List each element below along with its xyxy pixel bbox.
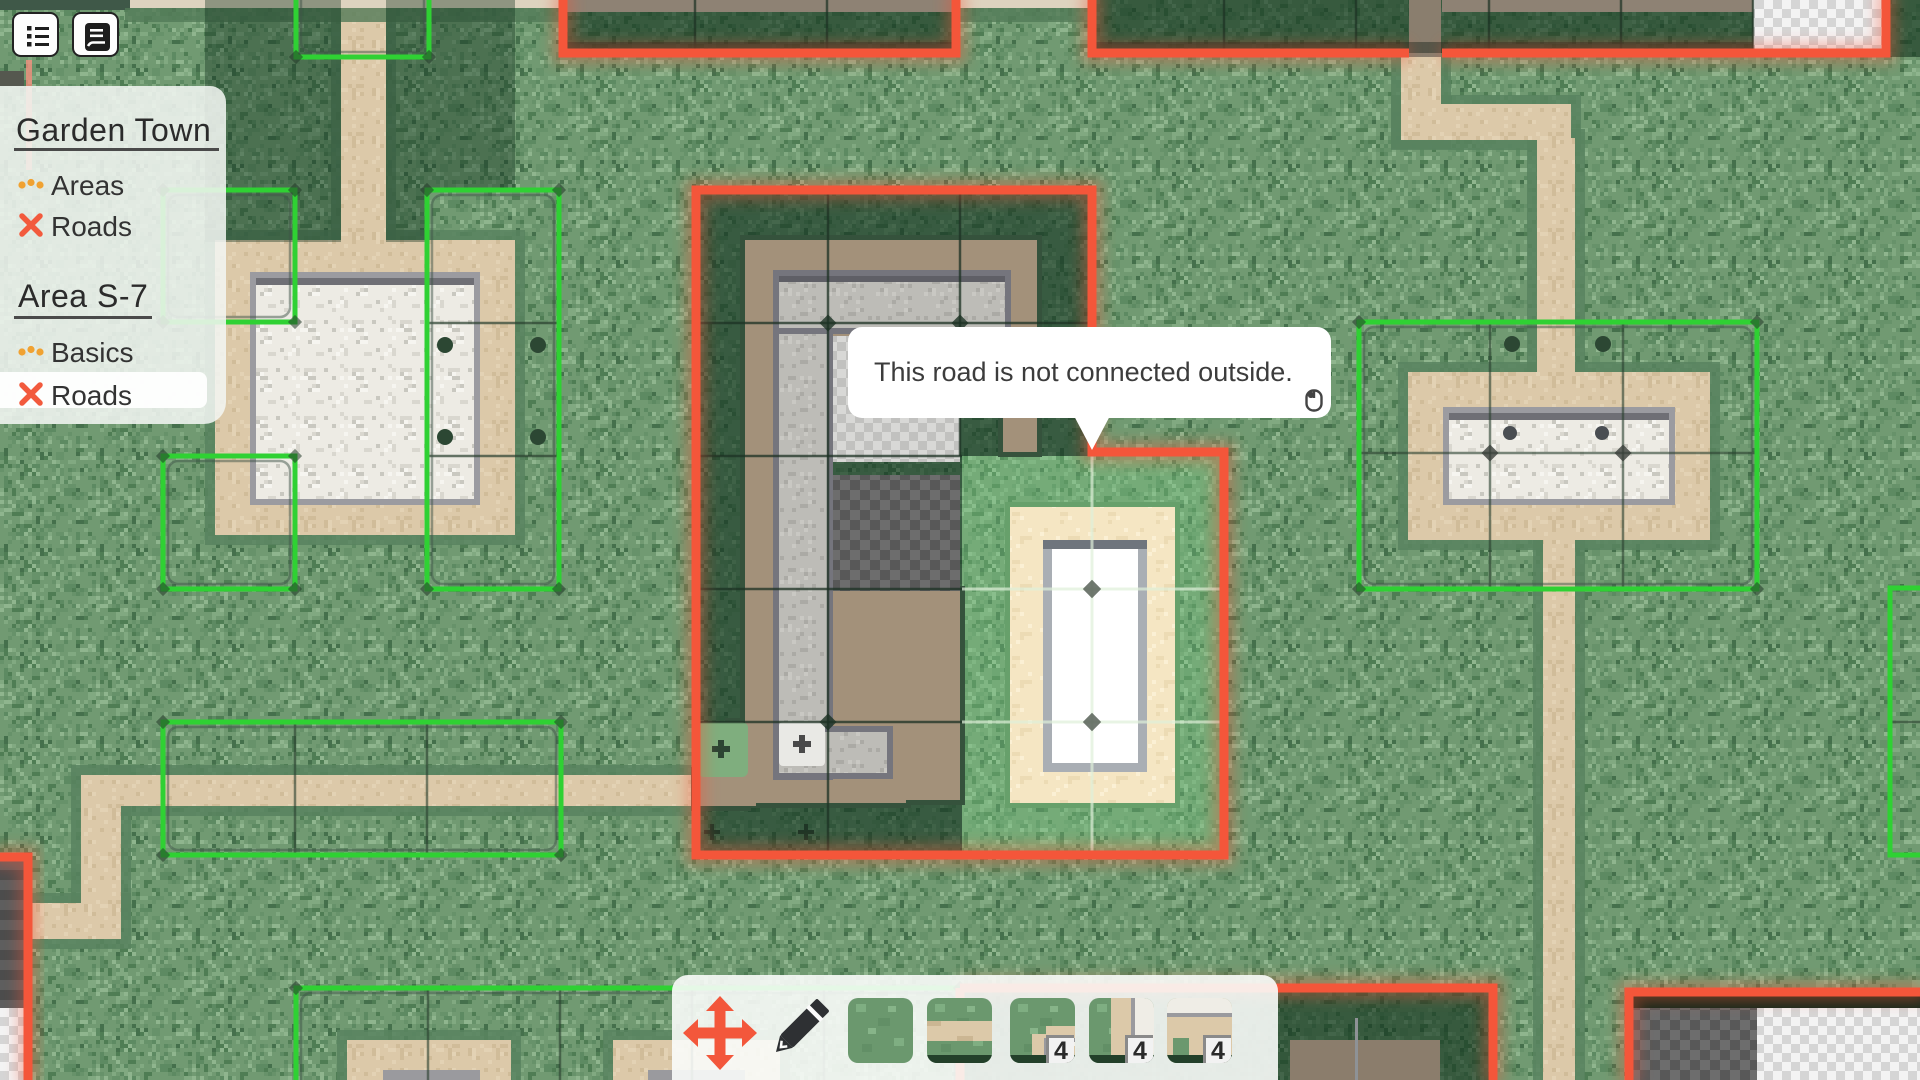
- svg-text:4: 4: [1133, 1037, 1147, 1063]
- svg-text:4: 4: [1054, 1037, 1068, 1063]
- svg-text:4: 4: [1211, 1037, 1225, 1063]
